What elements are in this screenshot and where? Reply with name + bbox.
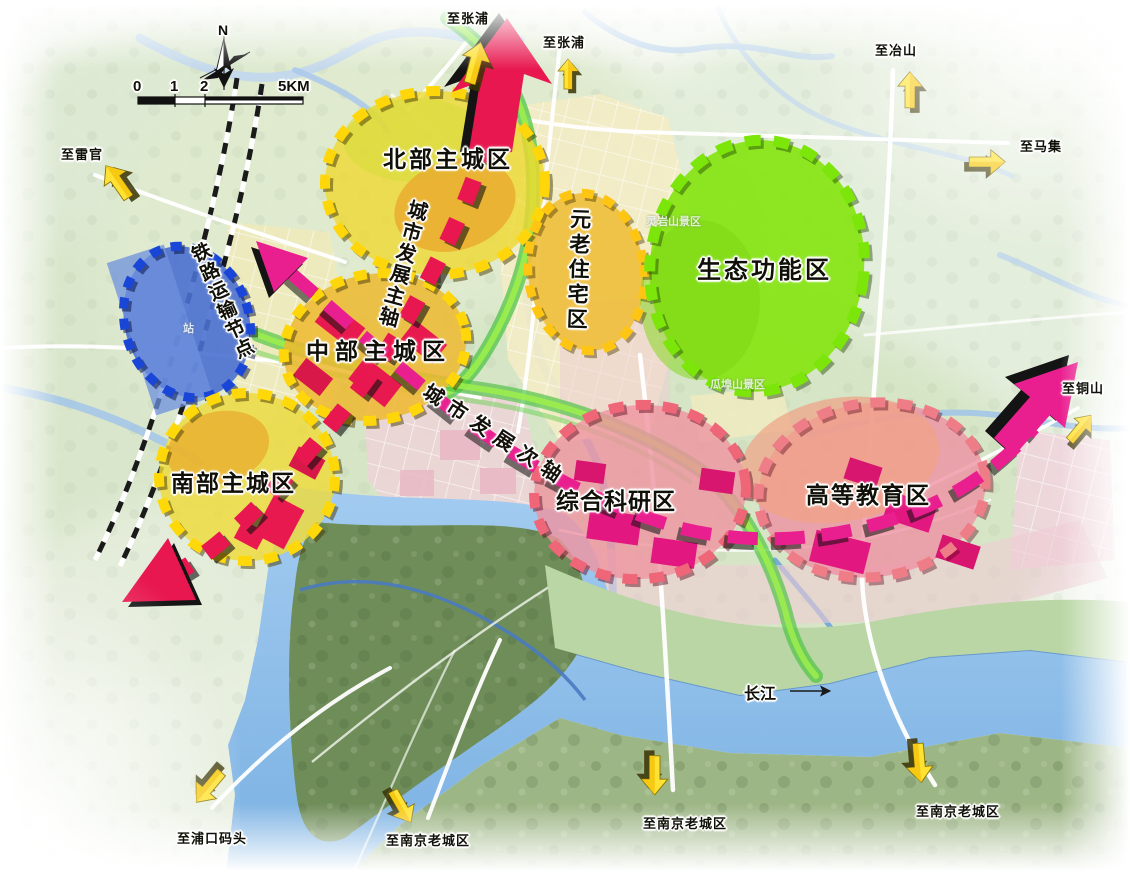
scenic-label-south: 瓜埠山景区 (710, 376, 765, 392)
map-canvas (0, 0, 1130, 883)
edge-label-nanjing-southwest: 至南京老城区 (386, 830, 470, 849)
edge-label-zhangpu-east: 至张浦 (543, 32, 585, 51)
station-label: 站 (183, 320, 194, 336)
edge-label-nanjing-southeast: 至南京老城区 (916, 801, 1000, 820)
zone-label-research: 综合科研区 (556, 482, 676, 516)
edge-label-tongshan: 至铜山 (1062, 378, 1104, 397)
scale-tick-0: 0 (133, 78, 141, 95)
edge-label-maji: 至马集 (1020, 136, 1062, 155)
scale-tick-1: 1 (170, 78, 178, 95)
scenic-label-north: 灵岩山景区 (646, 213, 701, 229)
planning-map: N 0 1 2 5KM 北部主城区 中部主城区 南部主城区 元老住宅区 生态功能… (0, 0, 1130, 883)
zone-label-south-main-city: 南部主城区 (171, 464, 296, 498)
scale-tick-5km: 5KM (278, 78, 310, 95)
edge-label-yeshan: 至冶山 (875, 40, 917, 59)
zone-label-higher-education: 高等教育区 (806, 476, 931, 510)
zone-label-central-main-city: 中部主城区 (306, 332, 451, 366)
zone-label-elder-residential: 元老住宅区 (560, 208, 594, 334)
zone-label-eco-function: 生态功能区 (697, 250, 832, 285)
zone-label-north-main-city: 北部主城区 (383, 140, 513, 174)
scale-tick-2: 2 (200, 78, 208, 95)
river-label: 长江 (744, 680, 776, 704)
compass-north-label: N (218, 22, 228, 38)
edge-label-nanjing-south: 至南京老城区 (643, 813, 727, 832)
edge-label-pukou: 至浦口码头 (177, 828, 247, 847)
edge-label-zhangpu-west: 至张浦 (447, 8, 489, 27)
edge-label-leiguan: 至雷官 (61, 144, 103, 163)
